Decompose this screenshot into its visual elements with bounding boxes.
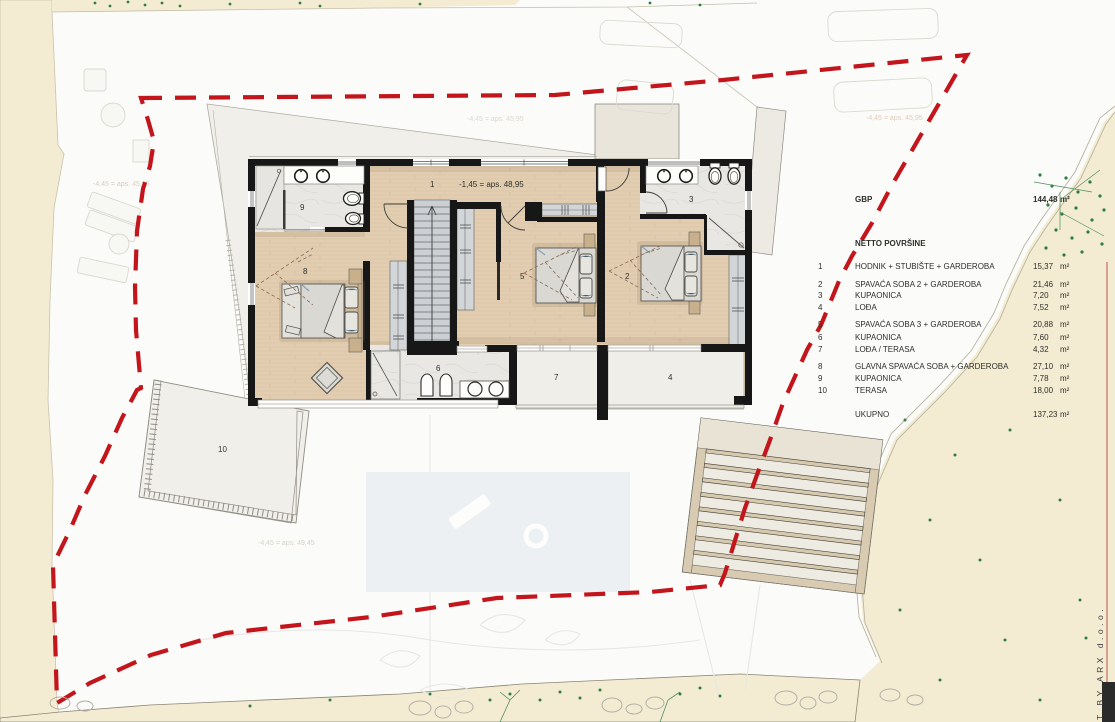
svg-text:LOĐA: LOĐA: [855, 303, 877, 312]
svg-text:4,32: 4,32: [1033, 345, 1049, 354]
svg-text:21,46: 21,46: [1033, 280, 1054, 289]
svg-text:KUPAONICA: KUPAONICA: [855, 374, 902, 383]
svg-text:m²: m²: [1060, 362, 1070, 371]
svg-text:7,60: 7,60: [1033, 333, 1049, 342]
svg-text:6: 6: [818, 333, 823, 342]
svg-text:-4,45 = aps. 45,95: -4,45 = aps. 45,95: [93, 181, 150, 188]
svg-text:7,78: 7,78: [1033, 374, 1049, 383]
svg-text:TERASA: TERASA: [855, 386, 888, 395]
svg-text:3: 3: [689, 195, 694, 204]
svg-text:m²: m²: [1060, 333, 1070, 342]
svg-text:2: 2: [625, 272, 630, 281]
svg-text:10: 10: [818, 386, 827, 395]
svg-text:137,23: 137,23: [1033, 410, 1058, 419]
svg-text:7: 7: [554, 373, 559, 382]
svg-text:-4,45 = aps. 45,95: -4,45 = aps. 45,95: [866, 115, 923, 122]
svg-text:SPAVAĆA SOBA 3 + GARDEROBA: SPAVAĆA SOBA 3 + GARDEROBA: [855, 320, 982, 329]
svg-text:m²: m²: [1060, 374, 1070, 383]
svg-text:m²: m²: [1060, 291, 1070, 300]
svg-text:15,37: 15,37: [1033, 262, 1054, 271]
svg-text:1: 1: [818, 262, 823, 271]
svg-text:10: 10: [218, 445, 227, 454]
svg-text:5: 5: [520, 272, 525, 281]
svg-text:5: 5: [818, 320, 823, 329]
svg-text:NETTO POVRŠINE: NETTO POVRŠINE: [855, 239, 926, 248]
svg-text:8: 8: [303, 267, 308, 276]
svg-text:m²: m²: [1060, 280, 1070, 289]
svg-text:T BY ARX d.o.o.: T BY ARX d.o.o.: [1095, 606, 1105, 720]
svg-text:3: 3: [818, 291, 823, 300]
svg-text:m²: m²: [1060, 410, 1070, 419]
svg-text:20,88: 20,88: [1033, 320, 1054, 329]
svg-text:-4,45 = aps. 45,95: -4,45 = aps. 45,95: [467, 116, 524, 123]
svg-text:144,48: 144,48: [1033, 195, 1058, 204]
svg-text:LOĐA / TERASA: LOĐA / TERASA: [855, 345, 916, 354]
svg-text:8: 8: [818, 362, 823, 371]
svg-text:7: 7: [818, 345, 823, 354]
svg-text:6: 6: [436, 364, 441, 373]
svg-text:4: 4: [818, 303, 823, 312]
svg-text:-1,45 = aps. 48,95: -1,45 = aps. 48,95: [459, 180, 524, 189]
svg-text:9: 9: [818, 374, 823, 383]
svg-text:GLAVNA SPAVAĆA SOBA + GARDEROB: GLAVNA SPAVAĆA SOBA + GARDEROBA: [855, 362, 1009, 371]
svg-text:7,52: 7,52: [1033, 303, 1049, 312]
svg-text:KUPAONICA: KUPAONICA: [855, 333, 902, 342]
svg-text:1: 1: [430, 180, 435, 189]
svg-text:KUPAONICA: KUPAONICA: [855, 291, 902, 300]
svg-text:SPAVAĆA SOBA 2 + GARDEROBA: SPAVAĆA SOBA 2 + GARDEROBA: [855, 280, 982, 289]
svg-text:m²: m²: [1060, 345, 1070, 354]
svg-text:-4,45 = aps. 49,45: -4,45 = aps. 49,45: [258, 540, 315, 547]
svg-text:4: 4: [668, 373, 673, 382]
svg-text:27,10: 27,10: [1033, 362, 1054, 371]
svg-text:m²: m²: [1060, 262, 1070, 271]
svg-text:9: 9: [300, 203, 305, 212]
svg-text:m²: m²: [1060, 320, 1070, 329]
svg-text:2: 2: [818, 280, 823, 289]
svg-text:GBP: GBP: [855, 195, 873, 204]
svg-text:UKUPNO: UKUPNO: [855, 410, 889, 419]
svg-text:HODNIK + STUBIŠTE + GARDEROBA: HODNIK + STUBIŠTE + GARDEROBA: [855, 262, 995, 271]
svg-text:18,00: 18,00: [1033, 386, 1054, 395]
svg-text:m²: m²: [1060, 386, 1070, 395]
svg-text:m²: m²: [1060, 303, 1070, 312]
svg-text:7,20: 7,20: [1033, 291, 1049, 300]
